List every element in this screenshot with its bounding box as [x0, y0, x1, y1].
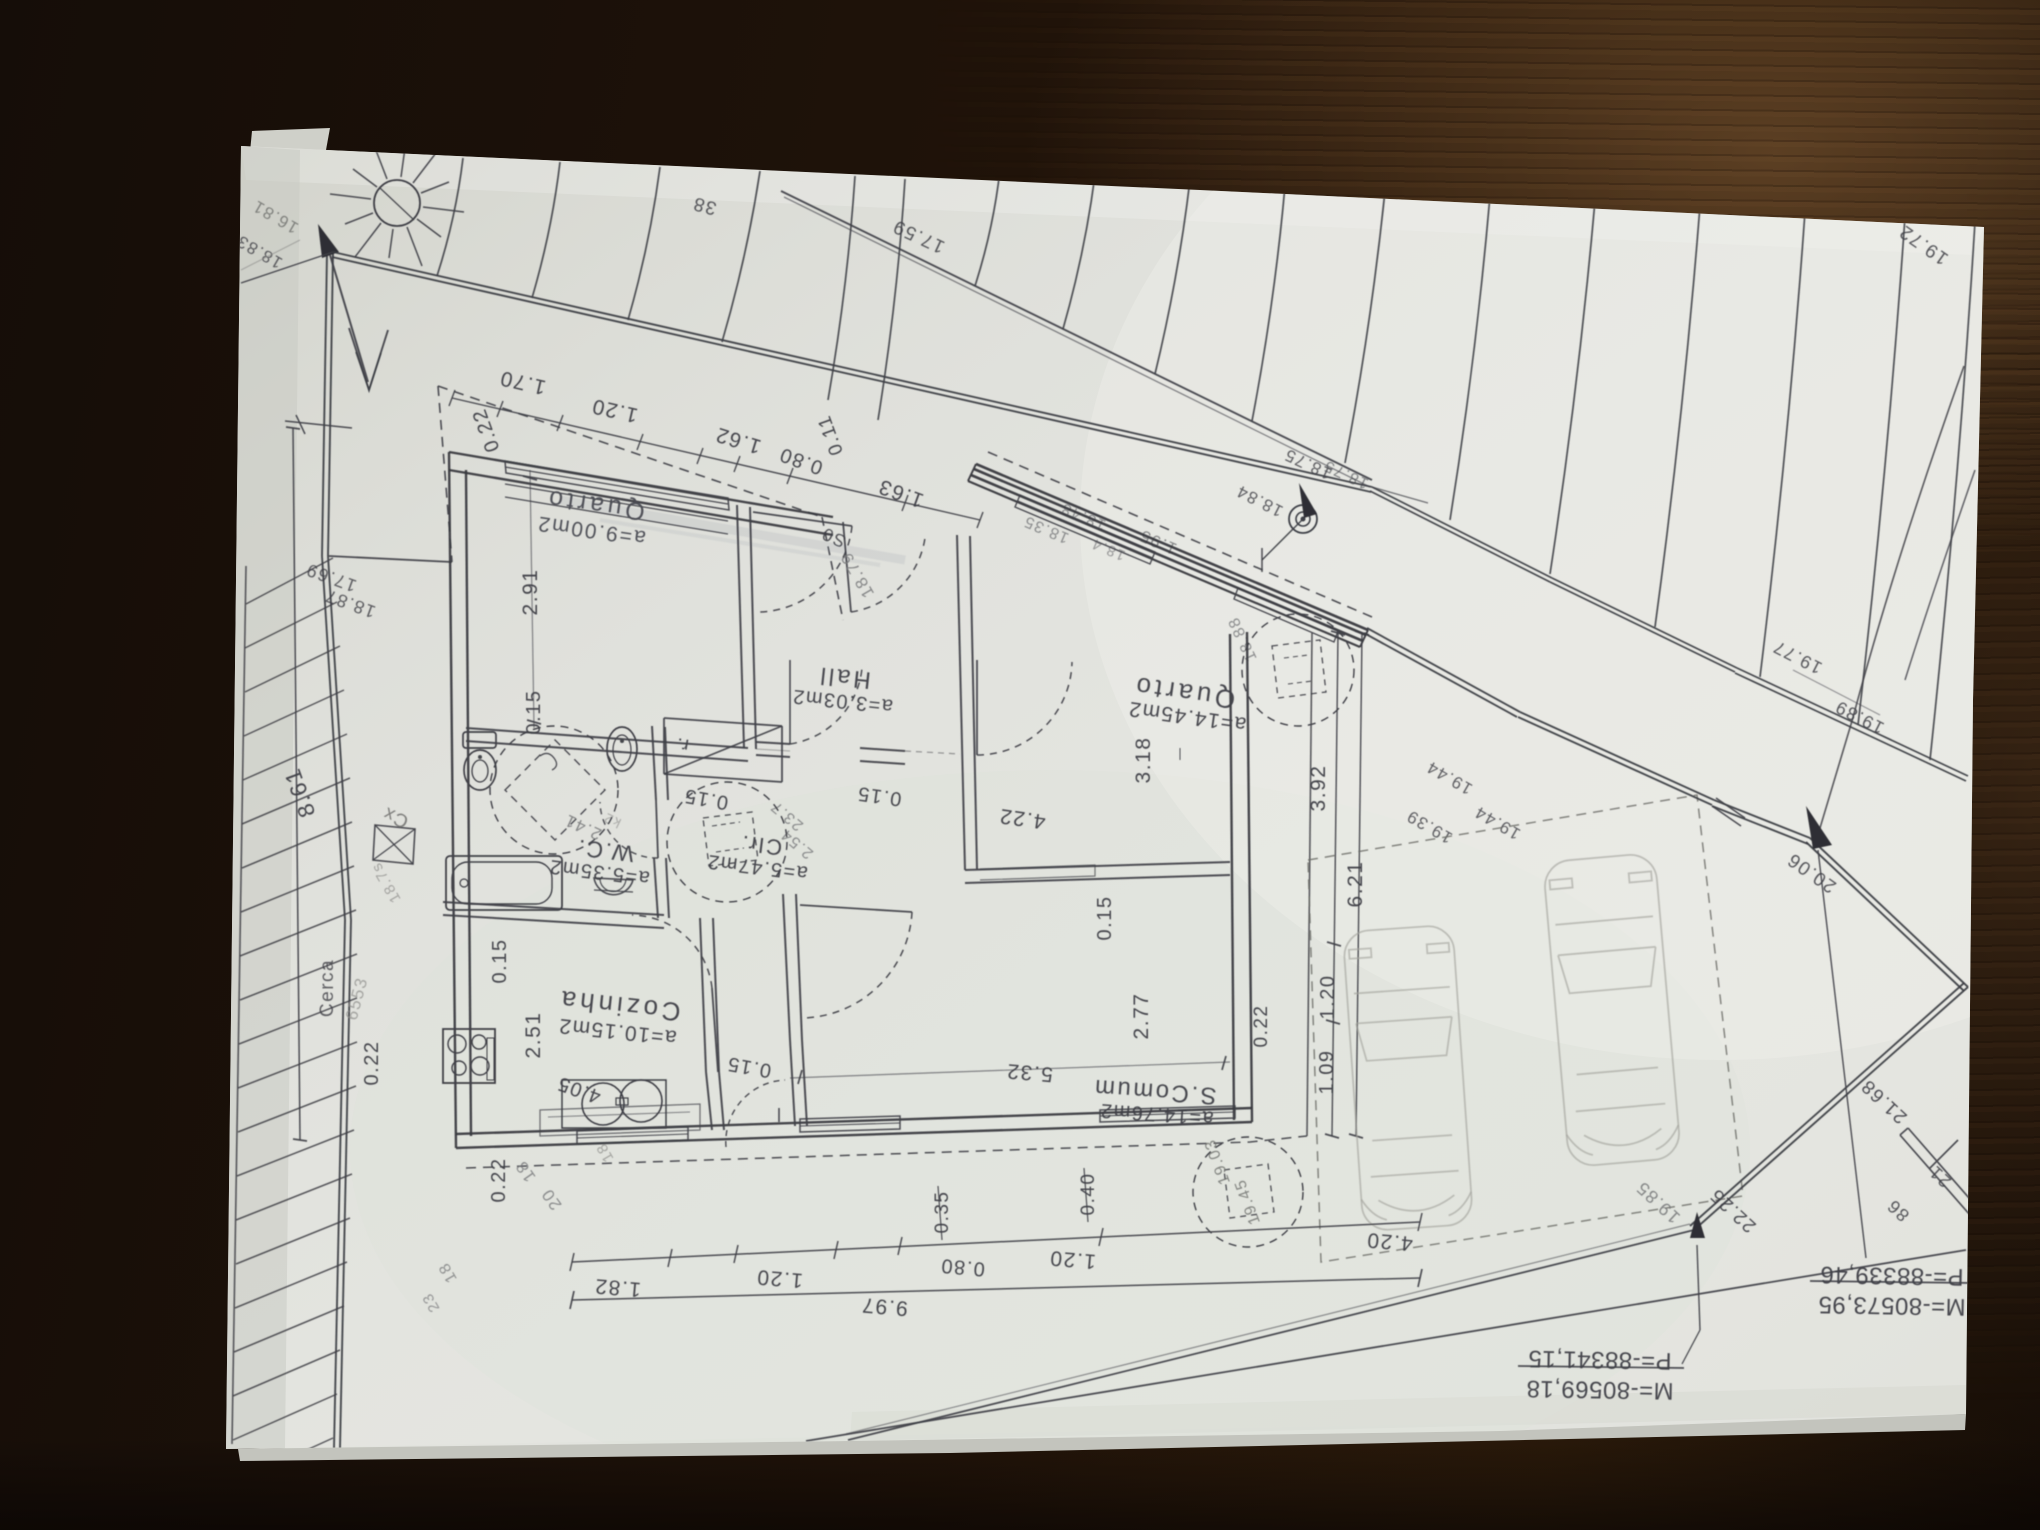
svg-text:P=-88341,15: P=-88341,15	[1528, 1345, 1672, 1375]
svg-text:M=-80573,95: M=-80573,95	[1818, 1291, 1966, 1321]
svg-text:2.51: 2.51	[522, 1012, 545, 1059]
svg-text:3.18: 3.18	[1132, 737, 1155, 784]
svg-text:9.97: 9.97	[860, 1293, 909, 1320]
svg-text:0.15: 0.15	[1094, 896, 1116, 941]
svg-text:0.35: 0.35	[932, 1191, 953, 1234]
svg-text:0.80: 0.80	[939, 1254, 986, 1280]
svg-text:1.20: 1.20	[1048, 1246, 1097, 1273]
svg-text:P=-88339,46: P=-88339,46	[1820, 1261, 1964, 1291]
svg-text:0.22: 0.22	[488, 1158, 510, 1203]
svg-text:0.22: 0.22	[1251, 1005, 1272, 1048]
svg-text:2.91: 2.91	[519, 569, 542, 616]
svg-text:1.20: 1.20	[755, 1265, 804, 1292]
svg-text:M=-80569,18: M=-80569,18	[1526, 1375, 1674, 1405]
svg-text:1.09: 1.09	[1316, 1050, 1338, 1095]
svg-text:0.15: 0.15	[489, 939, 511, 984]
svg-text:5.32: 5.32	[1005, 1059, 1054, 1086]
svg-text:1.82: 1.82	[593, 1274, 642, 1301]
svg-text:4.20: 4.20	[1365, 1228, 1414, 1255]
svg-text:2.77: 2.77	[1130, 993, 1153, 1040]
svg-text:0.40: 0.40	[1078, 1173, 1099, 1216]
svg-text:Cerca: Cerca	[317, 959, 338, 1017]
svg-text:0.22: 0.22	[361, 1041, 383, 1086]
svg-text:3.92: 3.92	[1307, 765, 1330, 812]
svg-text:6.21: 6.21	[1344, 861, 1367, 908]
svg-text:1.20: 1.20	[1317, 975, 1339, 1020]
